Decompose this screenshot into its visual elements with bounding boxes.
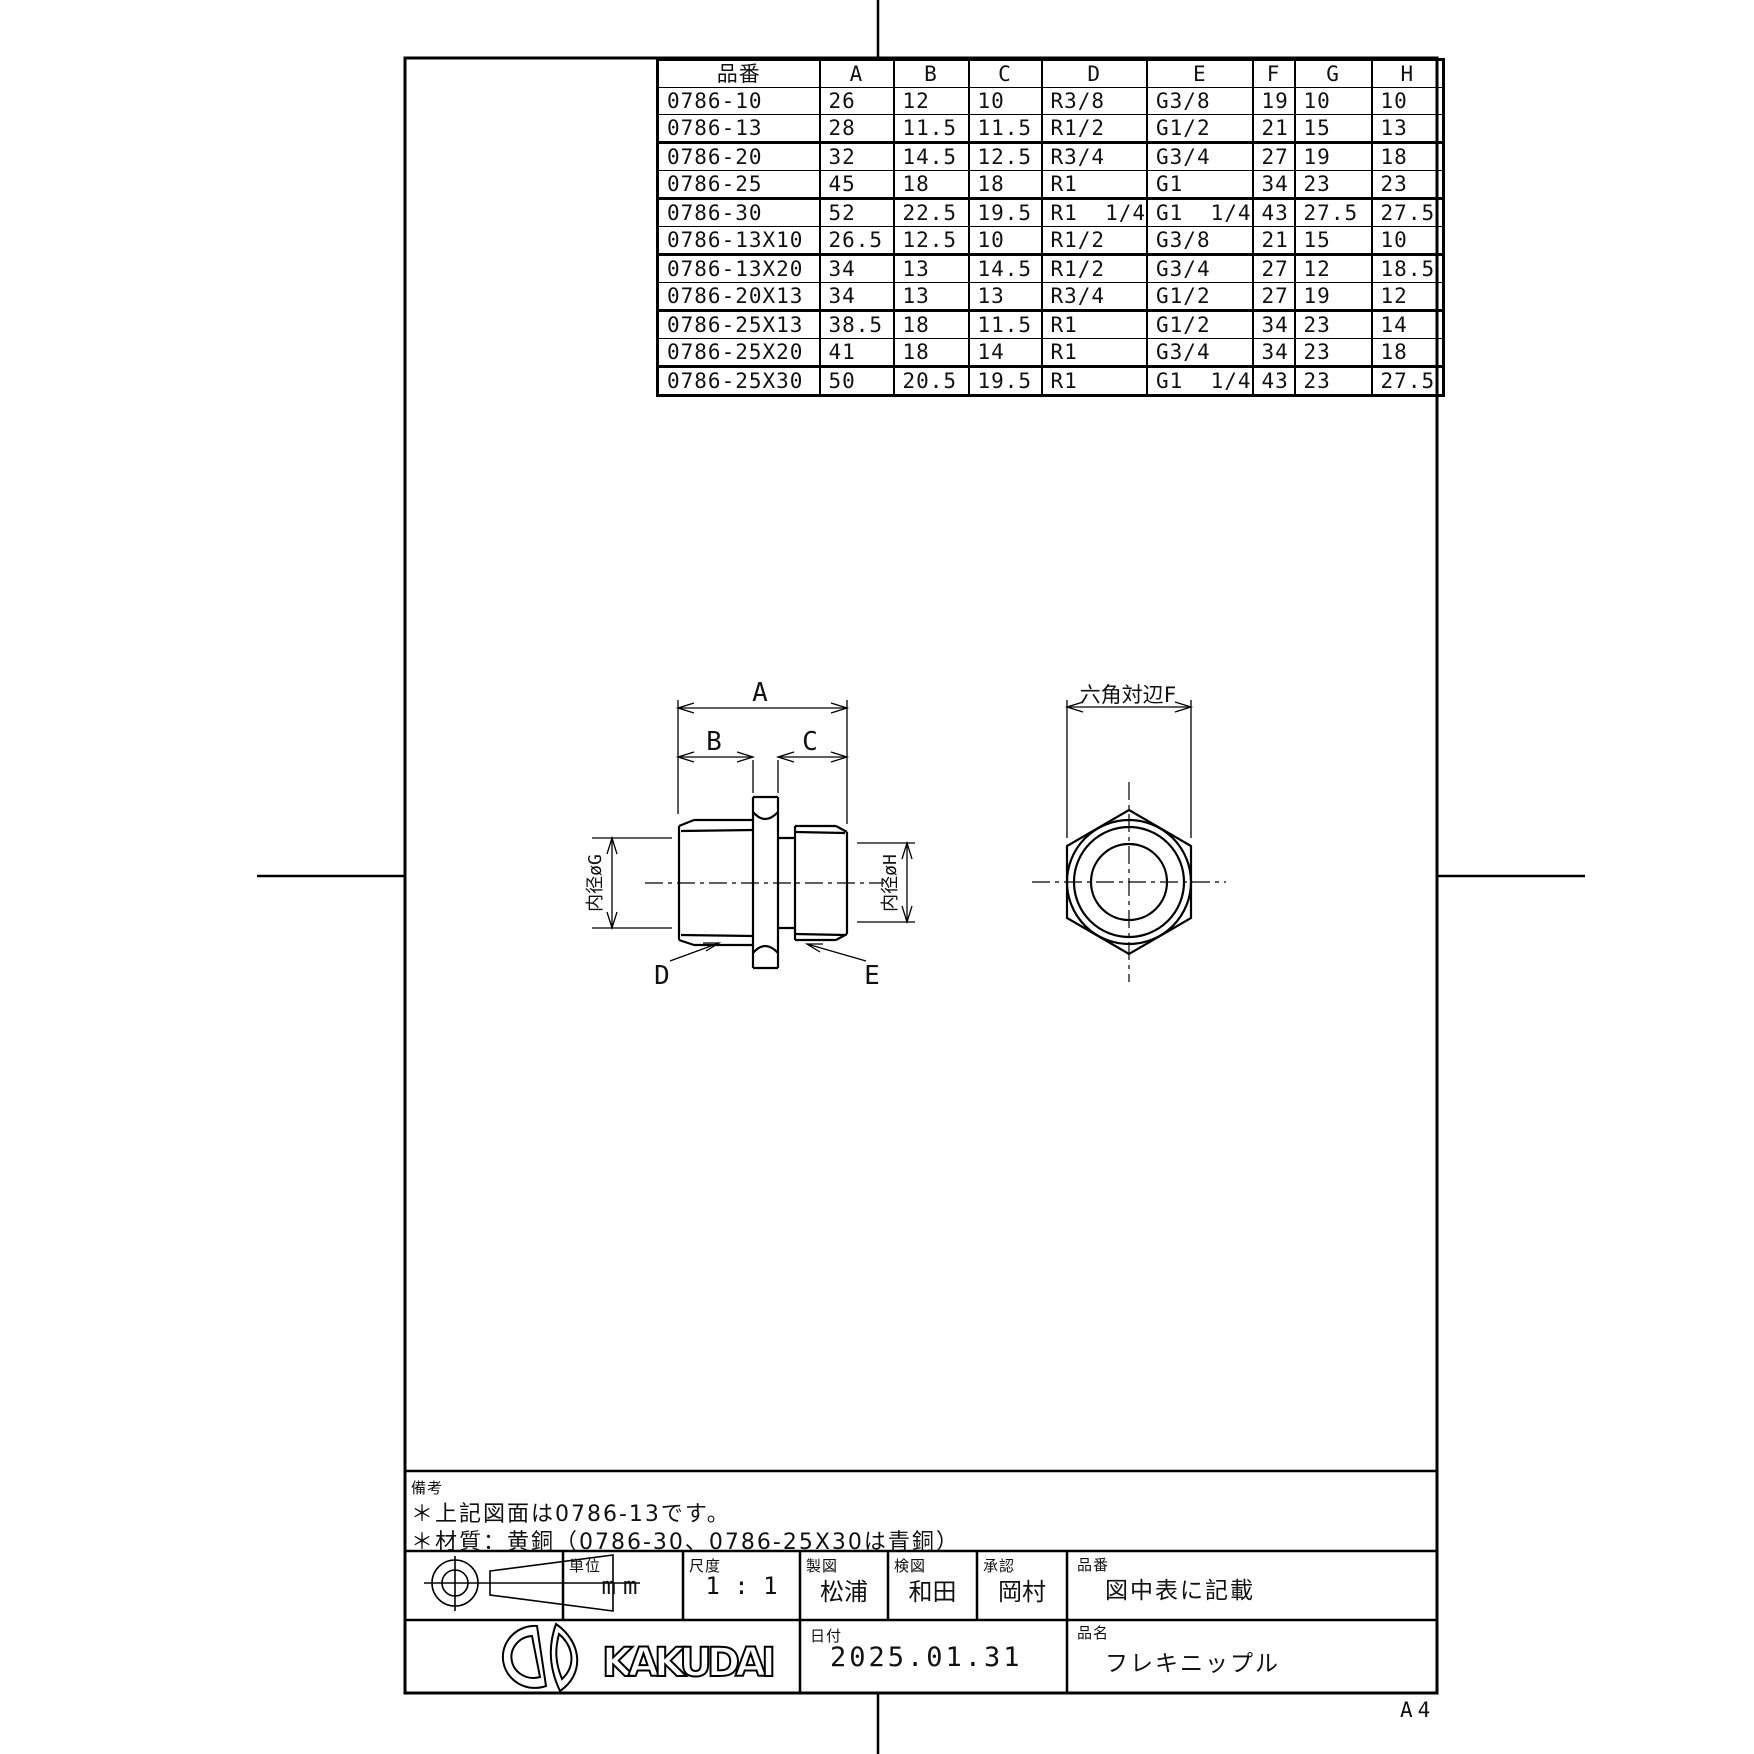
- checker-value: 和田: [888, 1572, 977, 1607]
- table-cell: 27: [1253, 283, 1295, 311]
- table-cell: 0786-25X13: [658, 311, 820, 339]
- table-cell: 10: [1372, 88, 1444, 115]
- dimension-table: 品番ABCDEFGH 0786-10261210R3/8G3/819101007…: [656, 58, 1445, 397]
- notes-title: 備考: [411, 1477, 443, 1498]
- table-cell: 13: [894, 255, 969, 283]
- table-cell: R1: [1042, 171, 1148, 199]
- date-value: 2025.01.31: [830, 1642, 1023, 1673]
- table-cell: 34: [1253, 311, 1295, 339]
- table-header-cell: E: [1147, 60, 1253, 88]
- table-cell: 0786-30: [658, 199, 820, 227]
- drawing-sheet: A B C D E 内径øG 内径øH 六角対辺F KAKUDAI 品番ABCD…: [0, 0, 1754, 1754]
- table-cell: 0786-13: [658, 115, 820, 143]
- table-header-cell: F: [1253, 60, 1295, 88]
- table-cell: 12.5: [894, 227, 969, 255]
- table-row: 0786-25451818R1G1342323: [658, 171, 1444, 199]
- table-row: 0786-305222.519.5R1 1/4G1 1/44327.527.5: [658, 199, 1444, 227]
- table-cell: R3/4: [1042, 283, 1148, 311]
- table-row: 0786-13X1026.512.510R1/2G3/8211510: [658, 227, 1444, 255]
- table-cell: 13: [1372, 115, 1444, 143]
- table-cell: G1/2: [1147, 283, 1253, 311]
- table-cell: 18: [969, 171, 1042, 199]
- table-cell: 18: [894, 171, 969, 199]
- table-cell: 11.5: [969, 115, 1042, 143]
- table-row: 0786-203214.512.5R3/4G3/4271918: [658, 143, 1444, 171]
- table-cell: 12: [1372, 283, 1444, 311]
- table-cell: 10: [969, 88, 1042, 115]
- scale-value: 1 : 1: [683, 1572, 800, 1600]
- name-label: 品名: [1077, 1622, 1109, 1643]
- table-cell: 0786-20X13: [658, 283, 820, 311]
- table-header-cell: 品番: [658, 60, 820, 88]
- dim-label-hex-f: 六角対辺F: [1080, 683, 1177, 707]
- table-header-cell: D: [1042, 60, 1148, 88]
- table-cell: R1: [1042, 311, 1148, 339]
- table-cell: 15: [1295, 115, 1372, 143]
- table-cell: G3/4: [1147, 255, 1253, 283]
- approver-value: 岡村: [977, 1572, 1067, 1607]
- table-cell: 12: [1295, 255, 1372, 283]
- table-cell: 26.5: [820, 227, 894, 255]
- table-cell: 14: [969, 339, 1042, 367]
- table-cell: 27: [1253, 255, 1295, 283]
- table-cell: 41: [820, 339, 894, 367]
- table-header-cell: G: [1295, 60, 1372, 88]
- table-cell: 26: [820, 88, 894, 115]
- table-cell: 34: [820, 283, 894, 311]
- table-cell: R3/4: [1042, 143, 1148, 171]
- table-cell: 22.5: [894, 199, 969, 227]
- name-value: フレキニップル: [1105, 1644, 1280, 1678]
- table-cell: 19.5: [969, 367, 1042, 396]
- table-cell: 27.5: [1372, 199, 1444, 227]
- dim-label-b: B: [706, 727, 722, 757]
- table-cell: 45: [820, 171, 894, 199]
- kakudai-logo-icon: [503, 1624, 577, 1691]
- table-cell: 12.5: [969, 143, 1042, 171]
- table-cell: 19: [1253, 88, 1295, 115]
- table-cell: 11.5: [894, 115, 969, 143]
- note-line-2: ＊材質：黄銅（0786-30、0786-25X30は青銅）: [411, 1524, 960, 1556]
- table-cell: G3/8: [1147, 88, 1253, 115]
- table-cell: 27.5: [1295, 199, 1372, 227]
- table-cell: R1/2: [1042, 255, 1148, 283]
- table-cell: 18.5: [1372, 255, 1444, 283]
- table-cell: 18: [894, 339, 969, 367]
- kakudai-logotype: KAKUDAI: [602, 1640, 778, 1686]
- table-cell: G1 1/4: [1147, 367, 1253, 396]
- drafter-value: 松浦: [800, 1572, 888, 1607]
- table-cell: 0786-13X20: [658, 255, 820, 283]
- dim-label-inner-g: 内径øG: [585, 854, 606, 912]
- dim-lines-abc: [678, 700, 847, 824]
- leader-label-d: D: [654, 961, 670, 991]
- table-cell: 43: [1253, 199, 1295, 227]
- table-cell: 27: [1253, 143, 1295, 171]
- table-cell: 34: [1253, 339, 1295, 367]
- table-cell: 23: [1295, 311, 1372, 339]
- table-cell: 13: [969, 283, 1042, 311]
- table-cell: 23: [1372, 171, 1444, 199]
- table-cell: G1/2: [1147, 311, 1253, 339]
- table-cell: 0786-10: [658, 88, 820, 115]
- table-cell: R1: [1042, 339, 1148, 367]
- table-cell: 19: [1295, 143, 1372, 171]
- table-cell: 21: [1253, 115, 1295, 143]
- table-cell: R1: [1042, 367, 1148, 396]
- table-header-cell: C: [969, 60, 1042, 88]
- table-cell: 23: [1295, 171, 1372, 199]
- table-cell: 19: [1295, 283, 1372, 311]
- paper-size-label: A4: [1400, 1698, 1435, 1722]
- leader-label-e: E: [864, 961, 880, 991]
- table-cell: 10: [1372, 227, 1444, 255]
- table-cell: 28: [820, 115, 894, 143]
- table-row: 0786-132811.511.5R1/2G1/2211513: [658, 115, 1444, 143]
- table-cell: R1 1/4: [1042, 199, 1148, 227]
- table-cell: G1: [1147, 171, 1253, 199]
- table-cell: R1/2: [1042, 227, 1148, 255]
- table-cell: 19.5: [969, 199, 1042, 227]
- table-cell: 21: [1253, 227, 1295, 255]
- dim-label-inner-h: 内径øH: [880, 854, 901, 912]
- table-cell: 50: [820, 367, 894, 396]
- hex-view-centerlines: [1032, 782, 1226, 982]
- table-header-cell: B: [894, 60, 969, 88]
- unit-value: mm: [563, 1572, 683, 1600]
- table-cell: 43: [1253, 367, 1295, 396]
- dim-label-c: C: [802, 727, 818, 757]
- table-cell: 38.5: [820, 311, 894, 339]
- table-cell: 23: [1295, 367, 1372, 396]
- table-cell: 27.5: [1372, 367, 1444, 396]
- table-header-cell: H: [1372, 60, 1444, 88]
- table-cell: 23: [1295, 339, 1372, 367]
- table-header-cell: A: [820, 60, 894, 88]
- table-row: 0786-20X13341313R3/4G1/2271912: [658, 283, 1444, 311]
- table-cell: R3/8: [1042, 88, 1148, 115]
- table-cell: 13: [894, 283, 969, 311]
- table-cell: 12: [894, 88, 969, 115]
- table-cell: G3/4: [1147, 339, 1253, 367]
- table-cell: R1/2: [1042, 115, 1148, 143]
- table-cell: 18: [894, 311, 969, 339]
- table-cell: 34: [820, 255, 894, 283]
- table-cell: 15: [1295, 227, 1372, 255]
- table-cell: G3/8: [1147, 227, 1253, 255]
- table-cell: 0786-20: [658, 143, 820, 171]
- table-cell: 0786-25X20: [658, 339, 820, 367]
- table-cell: 14.5: [894, 143, 969, 171]
- table-cell: G3/4: [1147, 143, 1253, 171]
- table-cell: 18: [1372, 339, 1444, 367]
- table-cell: 10: [969, 227, 1042, 255]
- table-cell: 34: [1253, 171, 1295, 199]
- table-cell: G1 1/4: [1147, 199, 1253, 227]
- table-cell: 18: [1372, 143, 1444, 171]
- table-cell: 14: [1372, 311, 1444, 339]
- table-row: 0786-25X1338.51811.5R1G1/2342314: [658, 311, 1444, 339]
- table-cell: 52: [820, 199, 894, 227]
- table-row: 0786-10261210R3/8G3/8191010: [658, 88, 1444, 115]
- table-cell: 20.5: [894, 367, 969, 396]
- table-cell: 32: [820, 143, 894, 171]
- table-cell: G1/2: [1147, 115, 1253, 143]
- table-header-row: 品番ABCDEFGH: [658, 60, 1444, 88]
- dim-label-a: A: [752, 678, 768, 708]
- table-row: 0786-25X305020.519.5R1G1 1/4432327.5: [658, 367, 1444, 396]
- part-no-value: 図中表に記載: [1105, 1571, 1255, 1605]
- table-cell: 0786-25X30: [658, 367, 820, 396]
- table-row: 0786-13X20341314.5R1/2G3/4271218.5: [658, 255, 1444, 283]
- table-cell: 14.5: [969, 255, 1042, 283]
- table-cell: 0786-25: [658, 171, 820, 199]
- table-cell: 10: [1295, 88, 1372, 115]
- table-cell: 0786-13X10: [658, 227, 820, 255]
- table-row: 0786-25X20411814R1G3/4342318: [658, 339, 1444, 367]
- table-cell: 11.5: [969, 311, 1042, 339]
